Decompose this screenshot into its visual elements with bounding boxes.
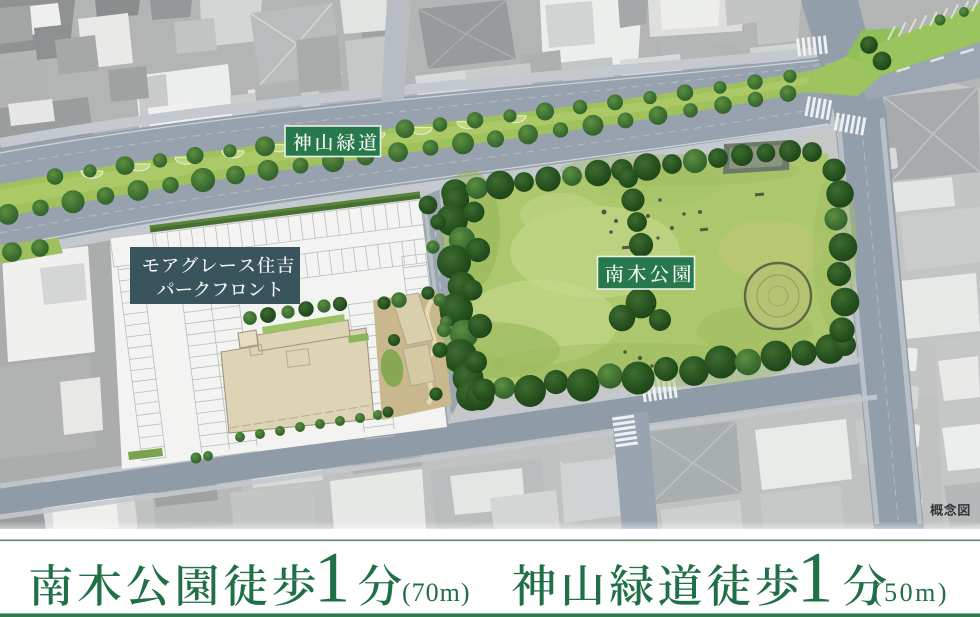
svg-text:(70m): (70m) bbox=[402, 578, 471, 607]
svg-text:1: 1 bbox=[314, 536, 350, 617]
svg-text:1: 1 bbox=[797, 536, 833, 617]
svg-text:(50m): (50m) bbox=[873, 578, 949, 607]
